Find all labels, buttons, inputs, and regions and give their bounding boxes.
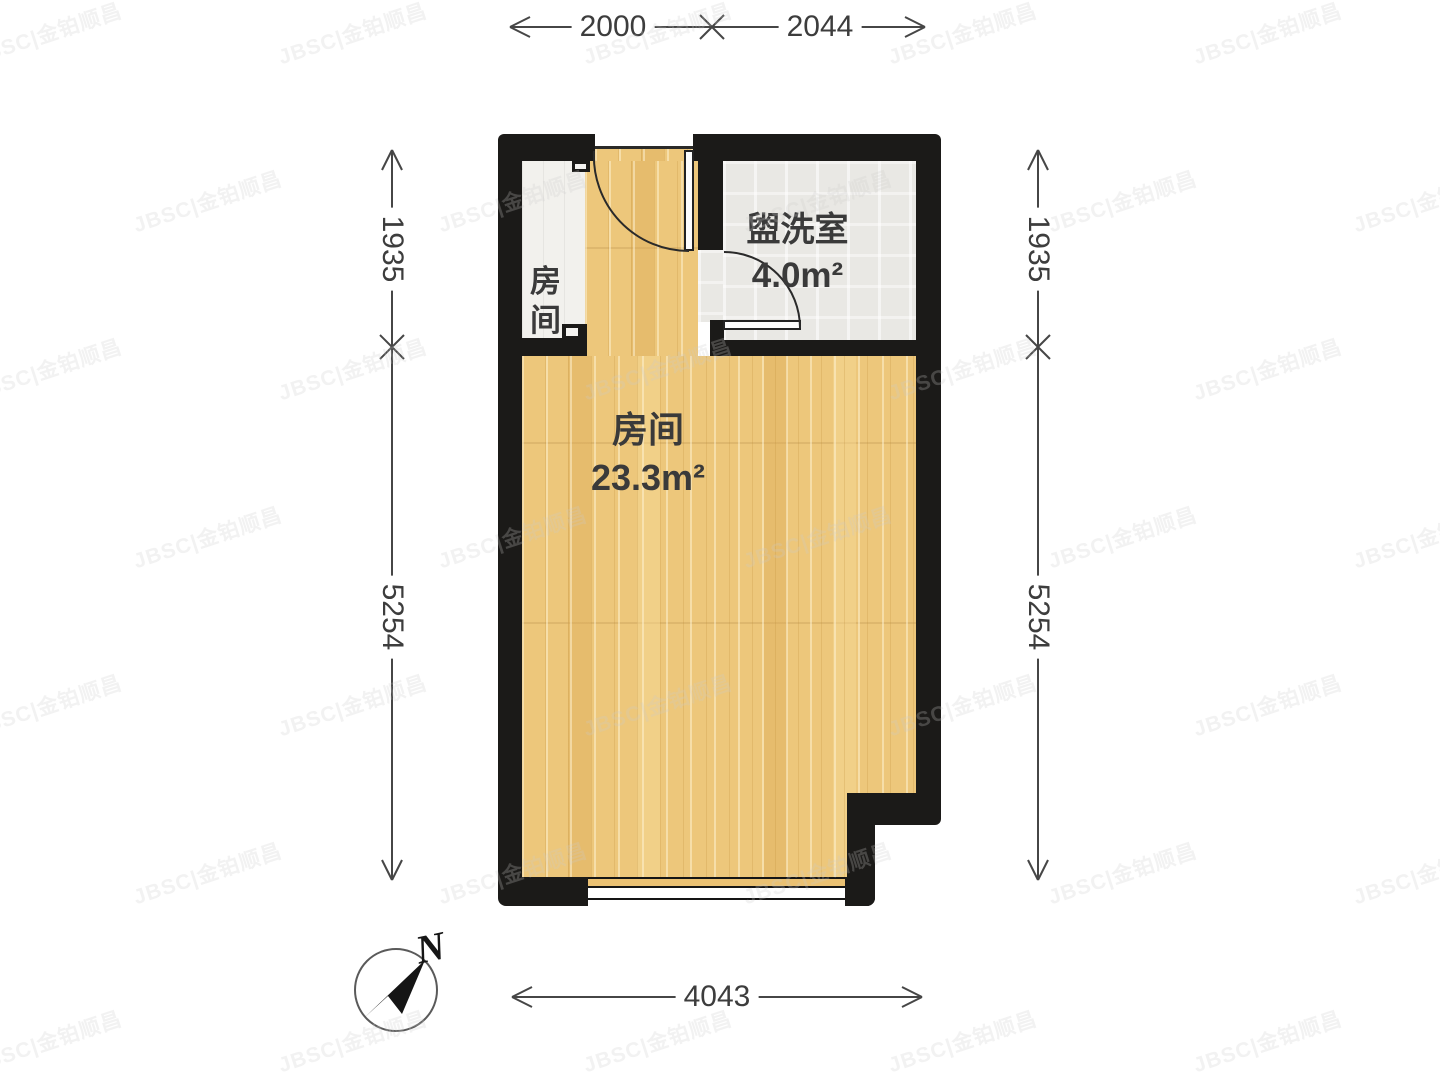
washroom-area: 4.0m² (700, 253, 895, 299)
dim-left-1: 1935 (374, 208, 410, 291)
dim-top-1: 2000 (572, 9, 655, 45)
washroom-label: 盥洗室 4.0m² (700, 208, 895, 299)
dim-left-2: 5254 (374, 576, 410, 659)
washroom-name: 盥洗室 (700, 208, 895, 253)
floor-plan-canvas: 盥洗室 4.0m² 房间 23.3m² 房间 2000 2044 4043 19… (0, 0, 1440, 1080)
dim-right-2: 5254 (1020, 576, 1056, 659)
closet-label: 房间 (530, 262, 566, 340)
main-room-label: 房间 23.3m² (583, 406, 713, 501)
dimension-and-symbol-overlay (0, 0, 1440, 1080)
dim-bottom-1: 4043 (676, 979, 759, 1015)
dim-top-2: 2044 (779, 9, 862, 45)
dim-right-1: 1935 (1020, 208, 1056, 291)
entrance-door-swing-arc (594, 151, 689, 251)
main-room-area: 23.3m² (583, 454, 713, 502)
main-room-name: 房间 (583, 406, 713, 454)
